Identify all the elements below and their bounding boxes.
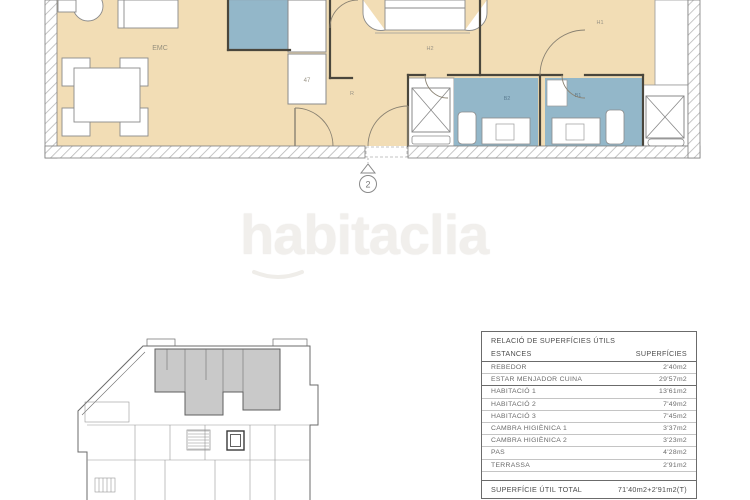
- room-name: PAS: [491, 449, 505, 456]
- total-label: SUPERFÍCIE ÚTIL TOTAL: [491, 485, 582, 494]
- room-area: 13'61m2: [659, 388, 687, 395]
- surfaces-table-header: ESTANCES SUPERFÍCIES: [482, 347, 696, 362]
- surfaces-table-total: SUPERFÍCIE ÚTIL TOTAL 71'40m2+2'91m2(T): [482, 480, 696, 498]
- bath2-mat: [412, 136, 450, 144]
- bath1-sink-bowl: [566, 124, 584, 140]
- bath2-toilet: [458, 112, 476, 144]
- room-area: 3'37m2: [663, 425, 687, 432]
- kitchen-unit-label: 47: [304, 78, 311, 84]
- hall-label: R: [350, 91, 354, 97]
- room-area: 7'49m2: [663, 401, 687, 408]
- table-row: HABITACIÓ 27'49m2: [482, 399, 696, 411]
- living-room-label: EMC: [152, 45, 168, 52]
- bath2-label: B2: [504, 96, 511, 102]
- right-shaft-area: [655, 0, 688, 85]
- bedroom-right-label: H1: [596, 20, 603, 26]
- floorplan-page: 47 B2 B1: [0, 0, 750, 500]
- room-name: ESTAR MENJADOR CUINA: [491, 376, 582, 383]
- room-area: 2'40m2: [663, 364, 687, 371]
- room-area: 3'23m2: [663, 437, 687, 444]
- elevator: [227, 431, 244, 450]
- table-row: CAMBRA HIGIÈNICA 13'37m2: [482, 423, 696, 435]
- column-estances: ESTANCES: [491, 349, 532, 358]
- unit-number: 2: [365, 180, 370, 190]
- unit-marker: 2: [360, 158, 377, 193]
- kitchen-column-upper: [288, 0, 326, 52]
- room-name: TERRASSA: [491, 462, 530, 469]
- total-value: 71'40m2+2'91m2(T): [618, 485, 687, 494]
- room-name: HABITACIÓ 3: [491, 413, 536, 420]
- room-area: 2'91m2: [663, 462, 687, 469]
- sofa: [118, 0, 178, 28]
- side-cabinet: [58, 0, 76, 12]
- bath2-sink-bowl: [496, 124, 514, 140]
- surfaces-table-title: RELACIÓ DE SUPERFÍCIES ÚTILS: [482, 332, 696, 347]
- building-partitions: [85, 402, 310, 500]
- apartment-floorplan: 47 B2 B1: [0, 0, 750, 200]
- table-row: HABITACIÓ 37'45m2: [482, 411, 696, 423]
- building-keyplan: [75, 330, 340, 500]
- room-name: CAMBRA HIGIÈNICA 1: [491, 425, 567, 432]
- table-row: HABITACIÓ 113'61m2: [482, 386, 696, 398]
- entry-threshold: [366, 147, 407, 157]
- column-superficies: SUPERFÍCIES: [636, 349, 687, 358]
- shaft-mat: [648, 139, 684, 146]
- highlighted-unit: [155, 349, 280, 415]
- room-area: 7'45m2: [663, 413, 687, 420]
- surfaces-table-rows: REBEDOR2'40m2ESTAR MENJADOR CUINA29'57m2…: [482, 362, 696, 472]
- table-row: PAS4'28m2: [482, 447, 696, 459]
- watermark-swoosh: [250, 268, 320, 284]
- room-area: 4'28m2: [663, 449, 687, 456]
- bedroom-mid-label: H2: [426, 46, 433, 52]
- room-name: HABITACIÓ 2: [491, 401, 536, 408]
- room-name: CAMBRA HIGIÈNICA 2: [491, 437, 567, 444]
- room-name: REBEDOR: [491, 364, 527, 371]
- surfaces-table: RELACIÓ DE SUPERFÍCIES ÚTILS ESTANCES SU…: [481, 331, 697, 499]
- kitchen-counter: [228, 0, 290, 50]
- watermark-logo: habitaclia: [240, 202, 540, 267]
- room-name: HABITACIÓ 1: [491, 388, 536, 395]
- table-row: REBEDOR2'40m2: [482, 362, 696, 374]
- bath1-toilet: [606, 110, 624, 144]
- room-area: 29'57m2: [659, 376, 687, 383]
- table-row: TERRASSA2'91m2: [482, 460, 696, 472]
- table-row: CAMBRA HIGIÈNICA 23'23m2: [482, 435, 696, 447]
- stairs: [187, 430, 210, 450]
- table-row: ESTAR MENJADOR CUINA29'57m2: [482, 374, 696, 386]
